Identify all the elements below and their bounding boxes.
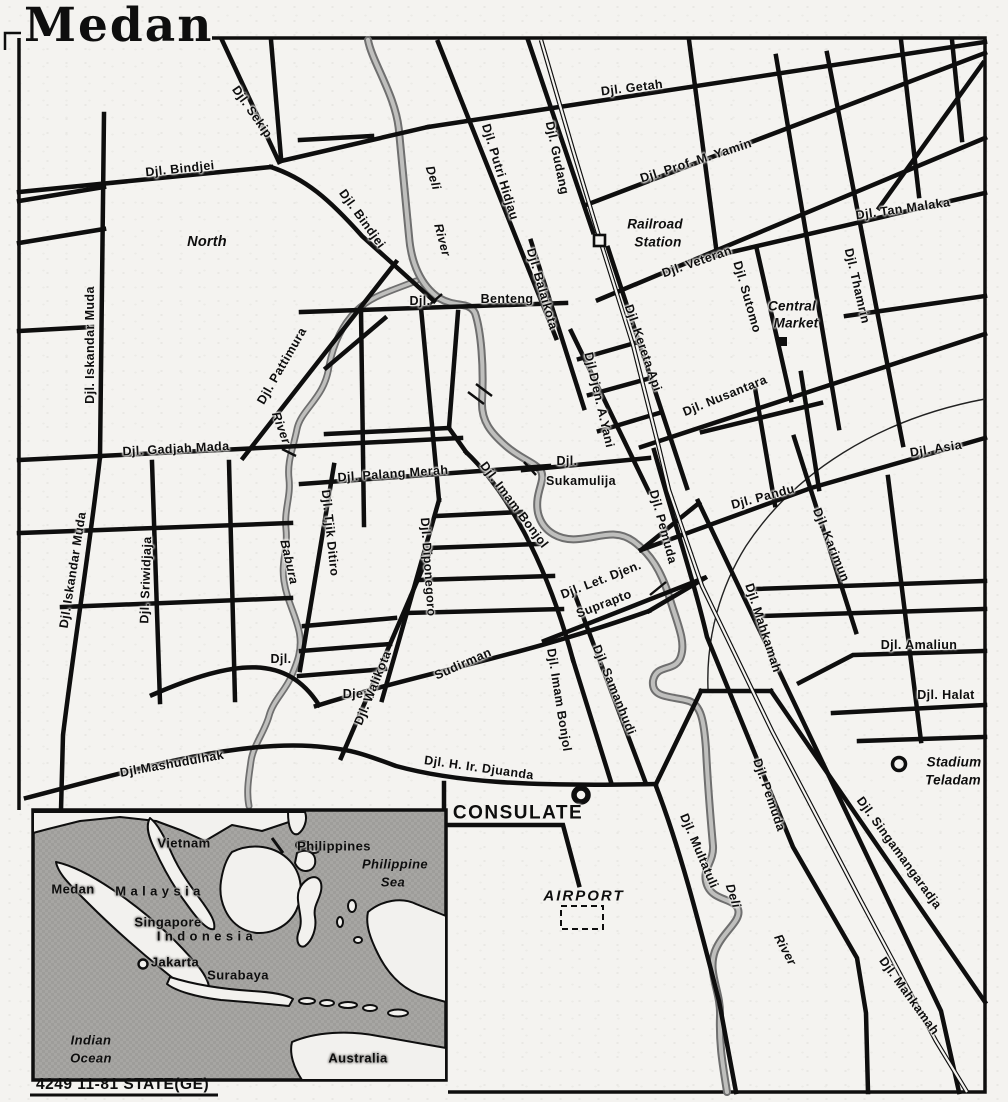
street-label-sukamulia-djl: Djl. — [556, 455, 577, 468]
inset-label-indian-ocean-line2: Ocean — [70, 1052, 112, 1065]
central-market-marker — [778, 337, 787, 346]
stadium-label-line1: Stadium — [927, 755, 982, 769]
inset-mindanao — [295, 851, 315, 871]
inset-label-philippine-sea-line2: Sea — [381, 876, 405, 889]
inset-label-malaysia: M a l a y s i a — [115, 885, 201, 898]
inset-label-philippines: Philippines — [297, 840, 371, 853]
inset-label-indian-ocean-line1: Indian — [71, 1034, 112, 1047]
stadium-marker — [893, 758, 906, 771]
inset-label-surabaya: Surabaya — [207, 969, 269, 982]
railroad-station-label-line2: Station — [634, 235, 681, 249]
railroad-station-label-line1: Railroad — [627, 217, 683, 231]
railroad-station-marker — [594, 235, 605, 246]
street-label-benteng: Benteng — [481, 293, 534, 306]
street-label-halat: Djl. Halat — [917, 689, 975, 702]
jakarta-marker — [139, 960, 148, 969]
inset-label-philippine-sea-line1: Philippine — [362, 858, 428, 871]
airport-label: AIRPORT — [543, 889, 624, 904]
central-market-label-line1: Central — [768, 299, 816, 313]
inset-label-vietnam: Vietnam — [157, 837, 210, 850]
inset-label-indonesia: I n d o n e s i a — [157, 930, 253, 943]
central-market-label-line2: Market — [774, 316, 819, 330]
stadium-label-line2: Teladam — [925, 773, 981, 787]
street-label-sukamulia: Sukamulija — [546, 475, 616, 488]
street-label-amaliun: Djl. Amaliun — [881, 639, 958, 652]
map-reference-number: 4249 11-81 STATE(GE) — [36, 1077, 209, 1093]
street-label-iskandar-muda: Djl. Iskandar Muda — [84, 286, 97, 404]
inset-label-jakarta: Jakarta — [151, 956, 199, 969]
street-label-djl-fragment: Djl. — [270, 653, 291, 666]
consulate-marker — [574, 788, 588, 802]
inset-label-medan: Medan — [51, 883, 94, 896]
north-label: North — [187, 235, 227, 250]
street-label-sriwidjaja: Djl. Sriwidjaja — [138, 536, 154, 624]
street-label-benteng-djl: Djl. — [409, 295, 430, 308]
inset-label-singapore: Singapore — [134, 916, 201, 929]
medan-city-map: Medan 4249 11-81 STATE(GE) Djl. Sekip Dj… — [0, 0, 1008, 1102]
inset-borneo — [220, 846, 300, 932]
inset-label-australia: Australia — [328, 1052, 387, 1065]
airport-marker — [561, 906, 603, 929]
consulate-label: CONSULATE — [453, 804, 583, 823]
map-title: Medan — [24, 2, 213, 49]
